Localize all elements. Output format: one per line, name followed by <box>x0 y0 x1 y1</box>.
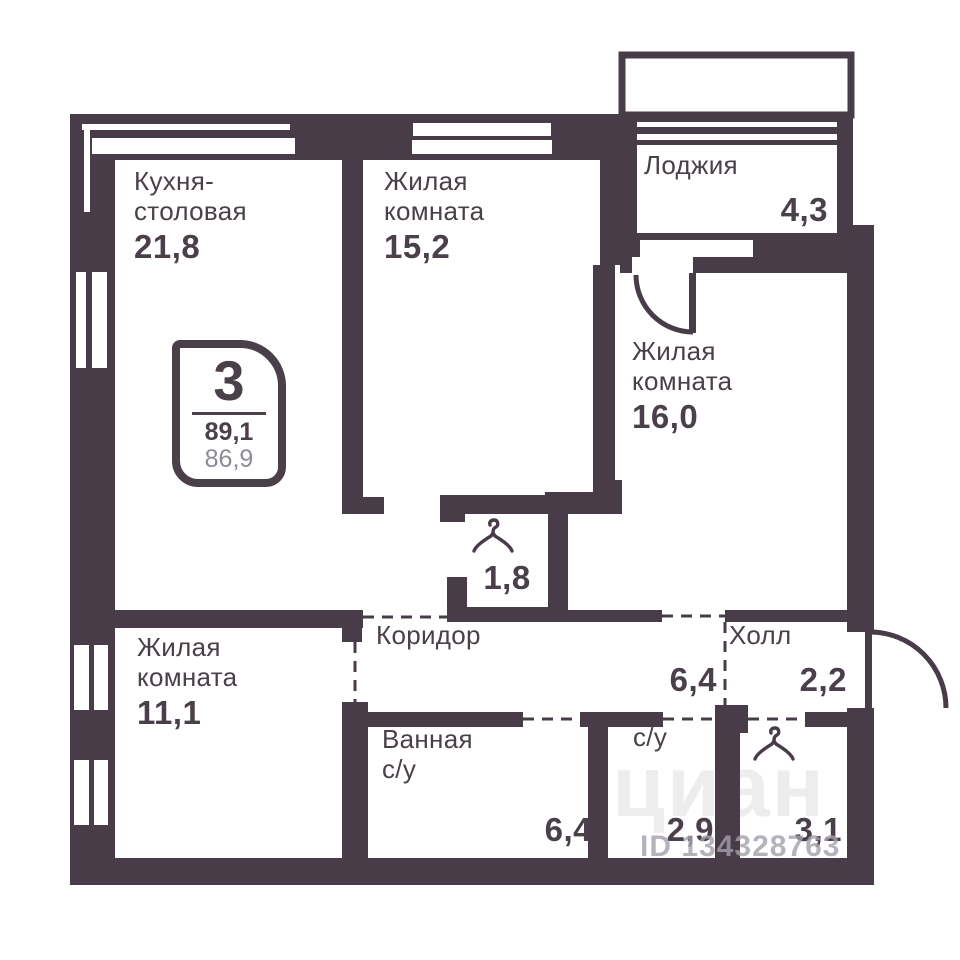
area-value-closet: 1,8 <box>462 560 552 596</box>
area-value-living1: 15,2 <box>384 229 484 265</box>
room-label-living1: Жилая комната 15,2 <box>384 166 484 265</box>
badge-total-area: 89,1 <box>205 419 254 446</box>
badge-divider <box>192 412 266 415</box>
area-value-kitchen: 21,8 <box>134 229 247 265</box>
balcony-door <box>636 273 696 333</box>
area-value-living2: 16,0 <box>632 399 732 435</box>
room-label-corridor: Коридор <box>376 620 481 650</box>
area-value-loggia: 4,3 <box>744 192 828 228</box>
room-label-living2: Жилая комната 16,0 <box>632 336 732 435</box>
badge-room-count: 3 <box>213 355 244 407</box>
room-label-kitchen: Кухня- столовая 21,8 <box>134 166 247 265</box>
room-label-loggia: Лоджия <box>644 150 738 180</box>
balcony-outline <box>622 55 851 115</box>
watermark-logo: циан <box>612 742 826 832</box>
area-value-hall: 2,2 <box>775 662 847 698</box>
hanger-icon <box>474 520 512 551</box>
room-label-bathroom: Ванная с/у <box>382 724 473 784</box>
watermark-id: ID 134328763 <box>640 830 841 864</box>
area-value-corridor: 6,4 <box>645 662 717 698</box>
room-label-living3: Жилая комната 11,1 <box>137 632 237 731</box>
entrance-door <box>865 632 946 708</box>
area-value-living3: 11,1 <box>137 695 237 731</box>
area-value-bathroom: 6,4 <box>520 812 592 848</box>
floor-plan: Кухня- столовая 21,8 Жилая комната 15,2 … <box>0 0 960 960</box>
plan-badge: 3 89,1 86,9 <box>172 340 286 487</box>
badge-living-area: 86,9 <box>205 446 254 473</box>
room-label-hall: Холл <box>729 620 791 650</box>
